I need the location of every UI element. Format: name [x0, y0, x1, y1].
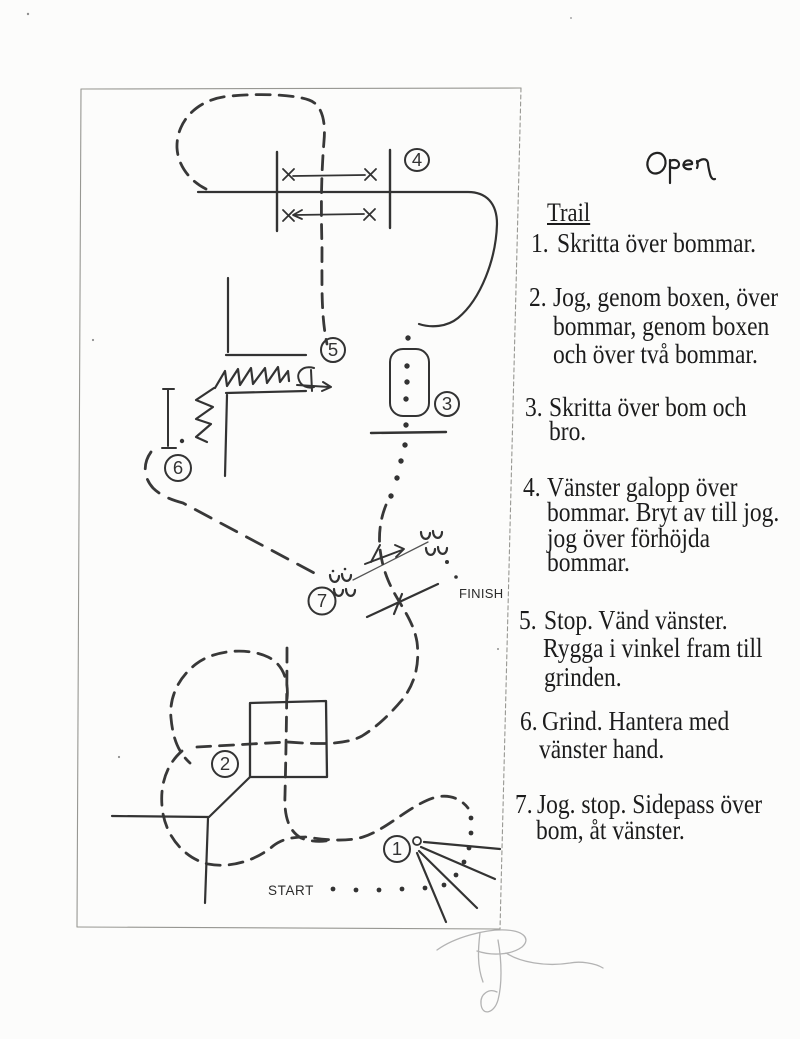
svg-text:3: 3 — [442, 393, 452, 414]
svg-text:START: START — [268, 883, 314, 898]
svg-text:4: 4 — [412, 149, 422, 170]
svg-text:6: 6 — [173, 457, 183, 478]
svg-text:5: 5 — [328, 339, 338, 360]
svg-text:7: 7 — [317, 590, 327, 611]
svg-text:1: 1 — [392, 838, 402, 859]
svg-text:2: 2 — [220, 753, 230, 774]
svg-text:FINISH: FINISH — [459, 586, 503, 601]
